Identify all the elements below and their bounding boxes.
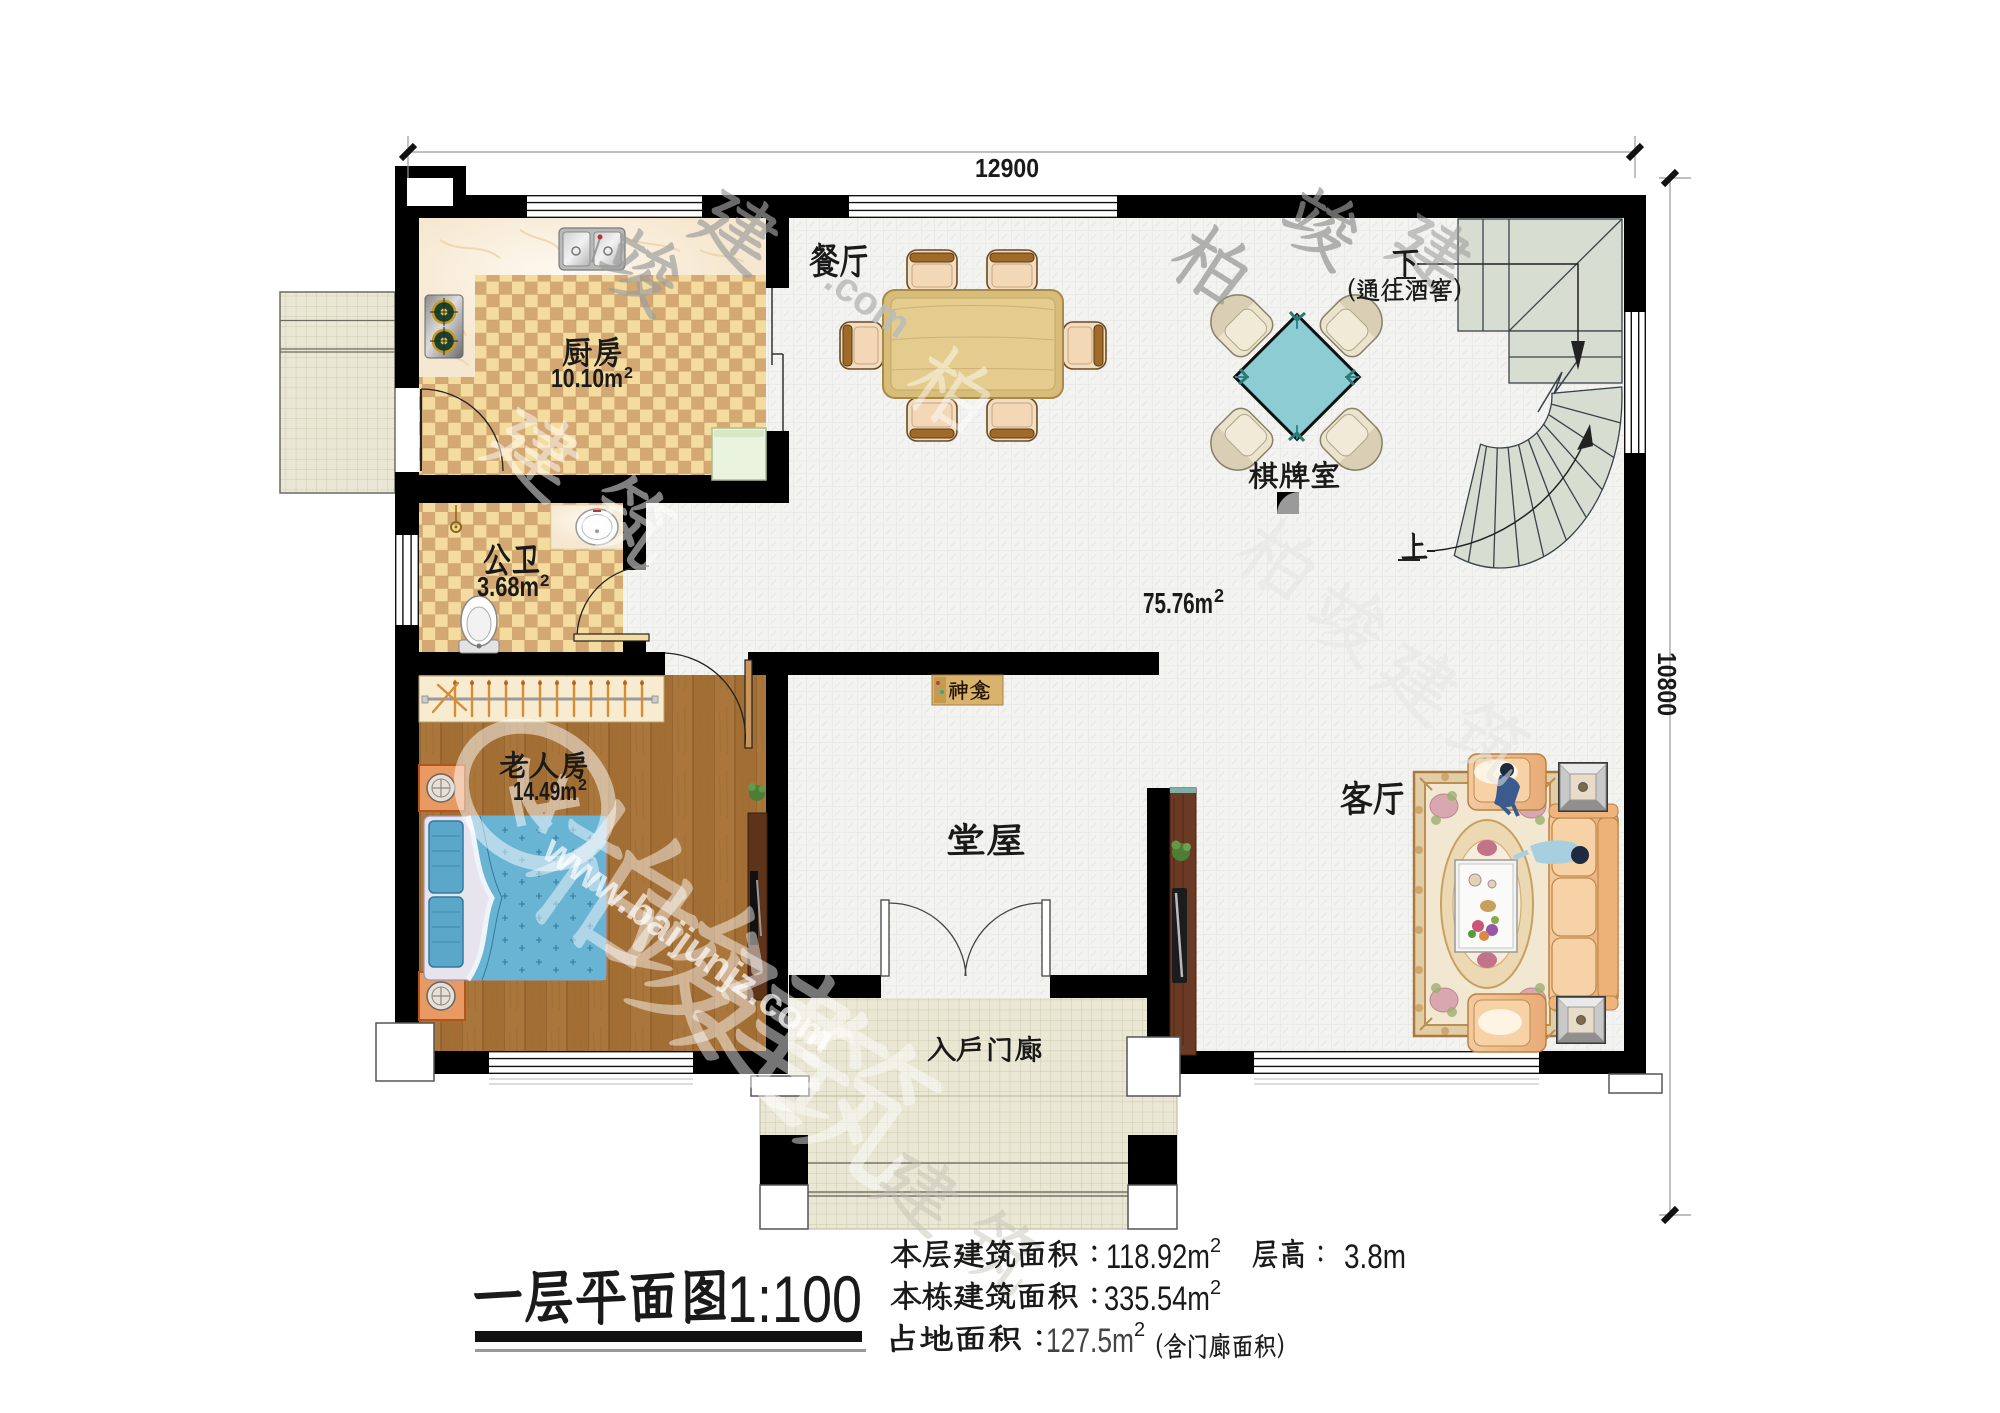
svg-text:127.5m: 127.5m — [1046, 1322, 1134, 1360]
svg-text:2: 2 — [1210, 1235, 1221, 1257]
svg-text:10800: 10800 — [1652, 652, 1682, 716]
svg-text:2: 2 — [1134, 1319, 1145, 1341]
svg-text:3.68m: 3.68m — [477, 571, 539, 602]
svg-text:14.49m: 14.49m — [513, 776, 577, 806]
svg-text:10.10m: 10.10m — [551, 363, 623, 393]
svg-text:2: 2 — [578, 777, 587, 794]
svg-text:2: 2 — [1210, 1277, 1221, 1299]
svg-text:3.8m: 3.8m — [1344, 1238, 1406, 1276]
svg-text:335.54m: 335.54m — [1104, 1280, 1210, 1318]
svg-text:12900: 12900 — [975, 153, 1039, 183]
svg-text:2: 2 — [1214, 586, 1224, 606]
svg-text:2: 2 — [540, 571, 549, 590]
svg-text:2: 2 — [624, 365, 633, 382]
svg-text:118.92m: 118.92m — [1106, 1238, 1210, 1276]
svg-text:75.76m: 75.76m — [1143, 588, 1213, 620]
svg-text:1:100: 1:100 — [727, 1262, 862, 1336]
